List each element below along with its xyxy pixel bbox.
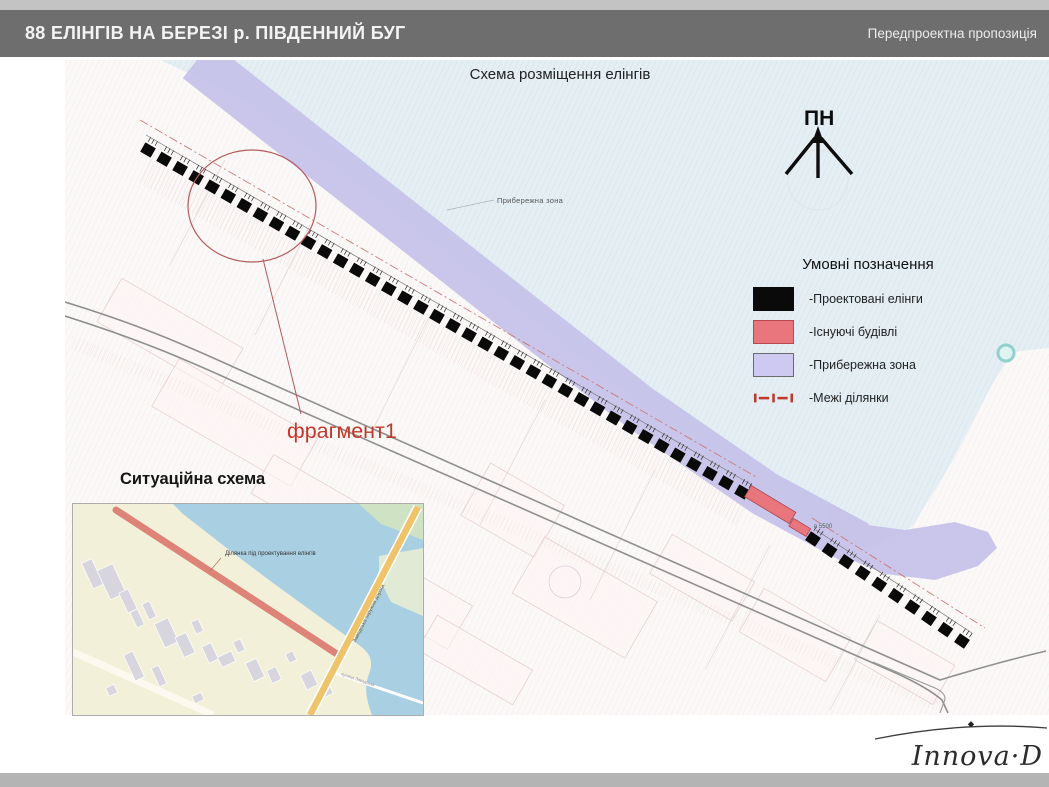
legend-item-projected-elingi: -Проектовані елінги — [753, 287, 1049, 311]
legend-swatch-elingi — [753, 287, 794, 311]
legend-swatch-existing — [753, 320, 794, 344]
north-label: ПН — [804, 107, 834, 130]
situational-map: Ділянка під проектування елінгів Заводсь… — [72, 503, 424, 716]
legend: Умовні позначення -Проектовані елінги -І… — [753, 256, 1049, 419]
situational-map-svg: Ділянка під проектування елінгів Заводсь… — [73, 504, 423, 715]
legend-swatch-coastal — [753, 353, 794, 377]
fragment-label: фрагмент1 — [287, 419, 397, 443]
slide: 88 ЕЛІНГІВ НА БЕРЕЗІ р. ПІВДЕННИЙ БУГ Пе… — [0, 0, 1049, 787]
legend-title: Умовні позначення — [753, 256, 983, 273]
logo: Innova·D — [873, 719, 1049, 773]
legend-item-site-boundary: -Межі ділянки — [753, 386, 1049, 410]
header-bar: 88 ЕЛІНГІВ НА БЕРЕЗІ р. ПІВДЕННИЙ БУГ Пе… — [0, 10, 1049, 57]
slide-subtitle: Передпроектна пропозиція — [868, 26, 1037, 41]
map-title: Схема розміщення елінгів — [430, 66, 690, 83]
boundary-line-icon — [753, 386, 794, 410]
svg-text:Прибережна зона: Прибережна зона — [497, 196, 564, 205]
legend-item-coastal-zone: -Прибережна зона — [753, 353, 1049, 377]
logo-arc — [873, 719, 1049, 741]
inset-site-label: Ділянка під проектування елінгів — [225, 551, 316, 557]
logo-text: Innova·D — [873, 741, 1049, 772]
slide-title: 88 ЕЛІНГІВ НА БЕРЕЗІ р. ПІВДЕННИЙ БУГ — [25, 23, 406, 44]
inset-title: Ситуаційна схема — [120, 470, 265, 489]
legend-item-existing-buildings: -Існуючі будівлі — [753, 320, 1049, 344]
elevation-label: в 5500 — [814, 524, 833, 530]
bottom-bar — [0, 773, 1049, 787]
top-strip — [0, 0, 1049, 10]
